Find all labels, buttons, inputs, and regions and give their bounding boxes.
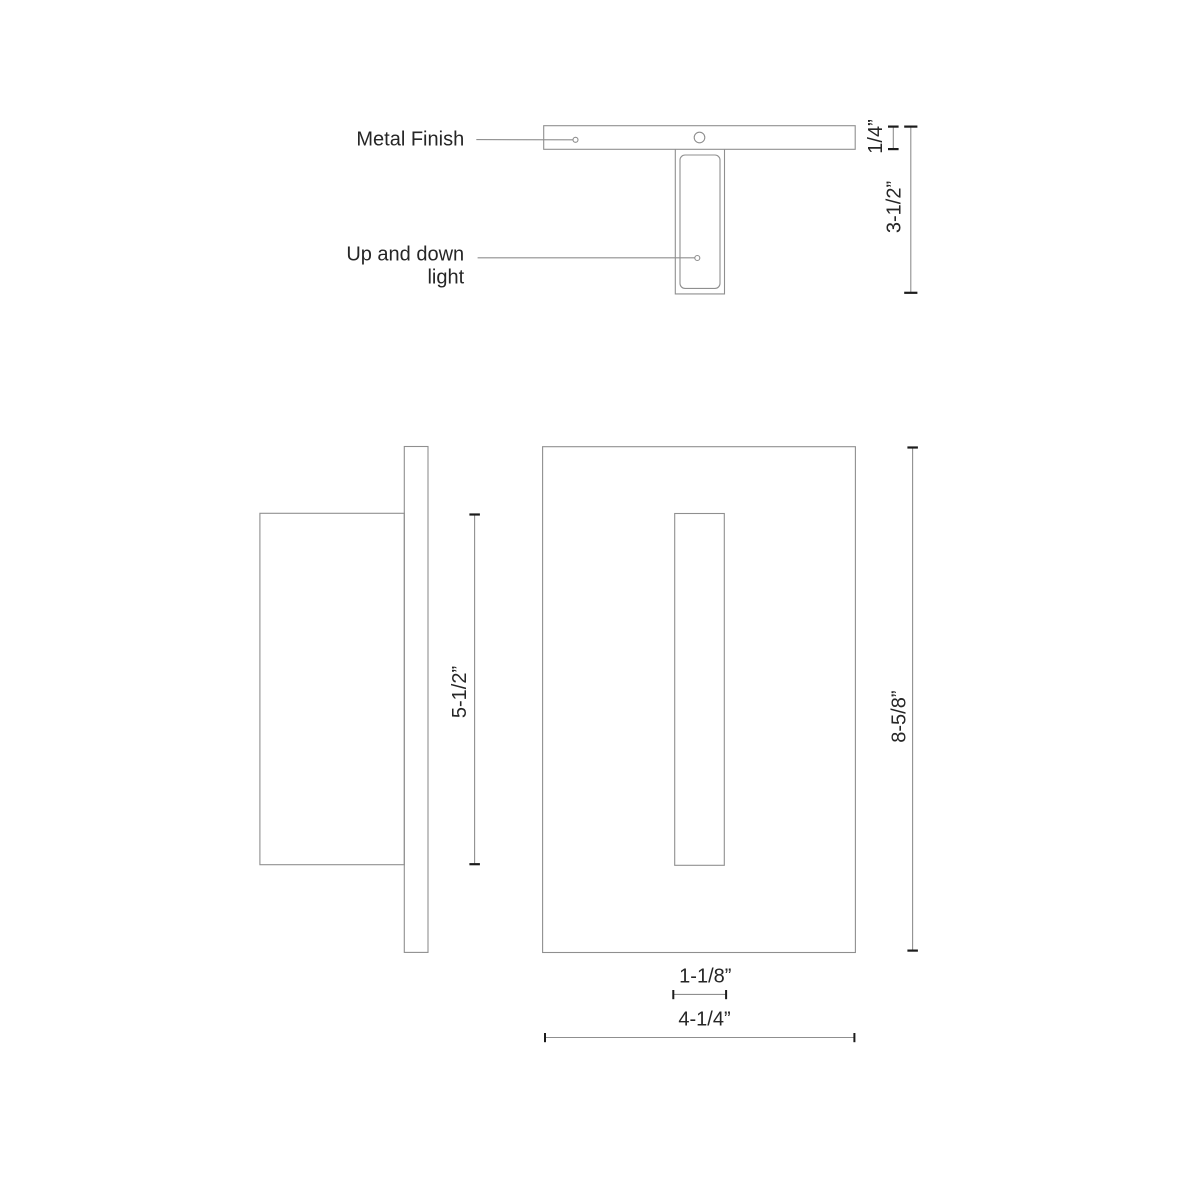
svg-text:4-1/4”: 4-1/4” <box>678 1009 730 1031</box>
svg-text:1-1/8”: 1-1/8” <box>679 965 731 987</box>
svg-text:Metal Finish: Metal Finish <box>356 129 464 151</box>
svg-text:light: light <box>427 267 464 289</box>
svg-text:5-1/2”: 5-1/2” <box>449 666 471 718</box>
svg-text:3-1/2”: 3-1/2” <box>884 181 906 233</box>
svg-text:1/4”: 1/4” <box>865 119 887 153</box>
svg-text:Up and down: Up and down <box>346 244 464 266</box>
svg-text:8-5/8”: 8-5/8” <box>889 690 911 742</box>
